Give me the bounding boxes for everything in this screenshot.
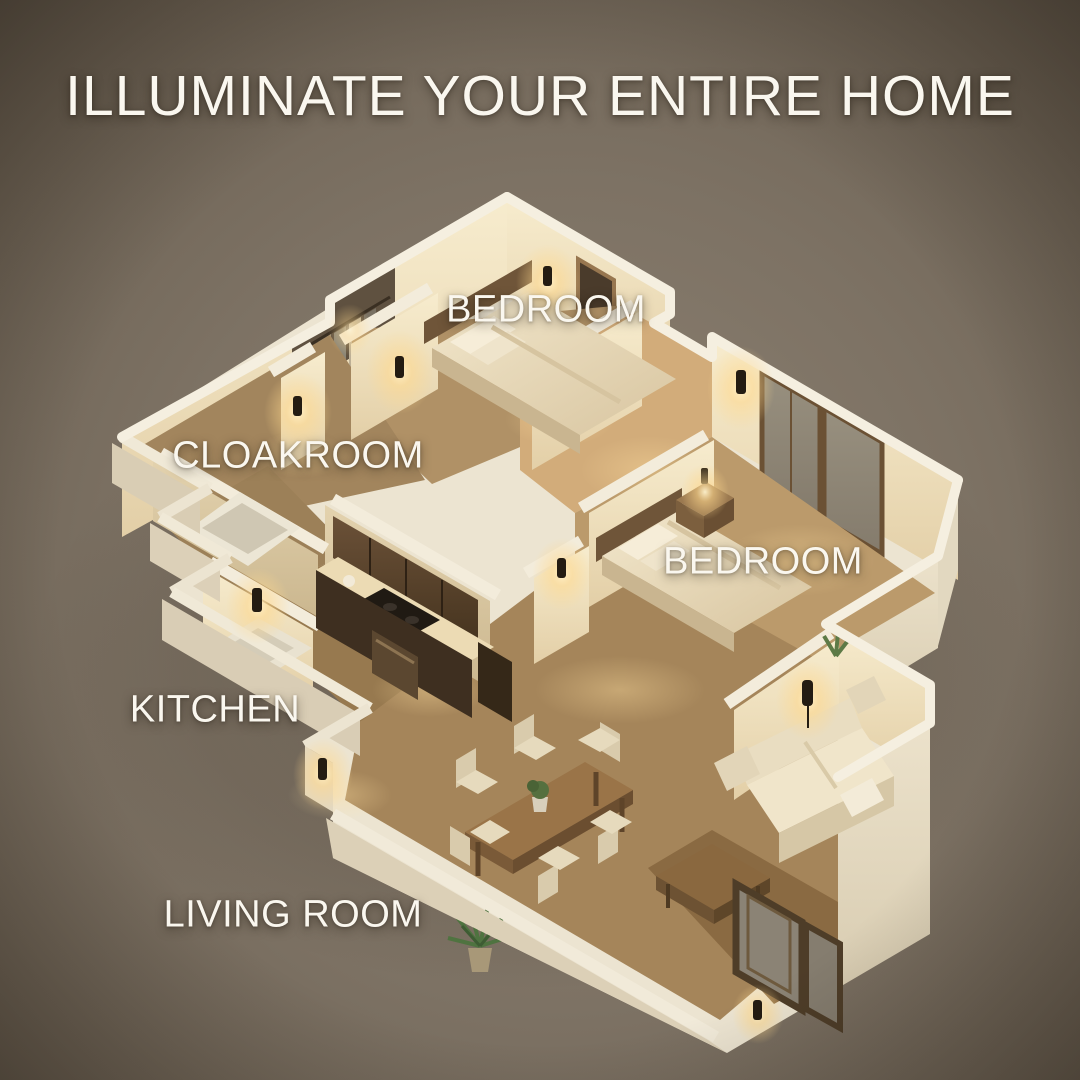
room-label-living-room: LIVING ROOM — [164, 894, 423, 937]
room-label-kitchen: KITCHEN — [130, 689, 300, 732]
poster: ILLUMINATE YOUR ENTIRE HOME BEDROOM CLOA… — [0, 0, 1080, 1080]
room-label-cloakroom: CLOAKROOM — [172, 435, 424, 478]
floor-plan-illustration — [0, 0, 1080, 1080]
room-label-bedroom-right: BEDROOM — [663, 541, 863, 584]
vignette — [0, 0, 1080, 1080]
room-label-bedroom-top: BEDROOM — [446, 289, 646, 332]
page-title: ILLUMINATE YOUR ENTIRE HOME — [65, 63, 1015, 129]
